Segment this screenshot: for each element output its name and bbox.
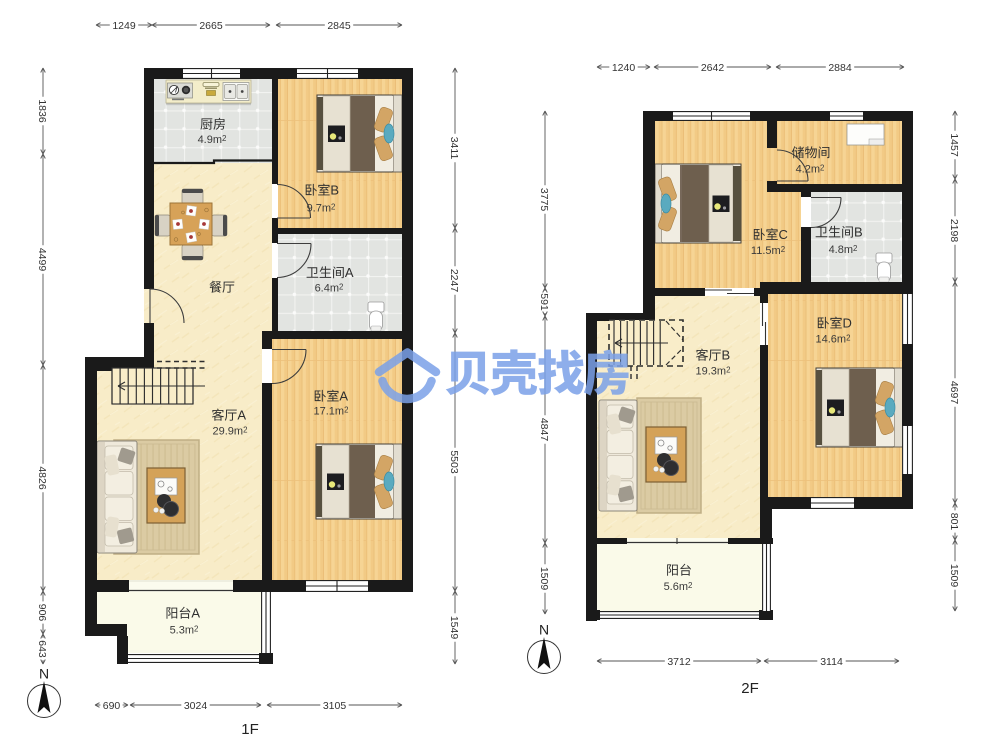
svg-text:29.9m2: 29.9m2 — [213, 426, 248, 438]
svg-text:3105: 3105 — [323, 700, 347, 712]
svg-text:690: 690 — [103, 700, 121, 712]
svg-text:1549: 1549 — [448, 616, 460, 640]
svg-text:B: B — [854, 225, 863, 240]
svg-text:19.3m2: 19.3m2 — [696, 366, 731, 378]
svg-text:C: C — [779, 227, 788, 242]
svg-text:B: B — [722, 348, 731, 363]
svg-text:14.6m2: 14.6m2 — [816, 334, 851, 346]
svg-text:1509: 1509 — [948, 564, 960, 588]
svg-text:A: A — [339, 389, 348, 404]
svg-text:3114: 3114 — [820, 656, 843, 668]
svg-text:2F: 2F — [741, 680, 759, 697]
svg-text:A: A — [191, 606, 200, 621]
svg-text:2884: 2884 — [828, 62, 852, 74]
svg-text:2642: 2642 — [701, 62, 725, 74]
svg-text:4826: 4826 — [36, 466, 48, 490]
svg-text:N: N — [39, 666, 49, 682]
svg-text:3712: 3712 — [667, 656, 691, 668]
svg-text:3775: 3775 — [538, 188, 550, 212]
svg-text:3024: 3024 — [184, 700, 208, 712]
svg-text:906: 906 — [36, 604, 48, 622]
svg-text:D: D — [843, 316, 852, 331]
svg-text:1509: 1509 — [538, 567, 550, 591]
svg-text:5503: 5503 — [448, 450, 460, 474]
svg-text:2247: 2247 — [448, 269, 460, 293]
svg-text:801: 801 — [948, 513, 960, 531]
svg-text:B: B — [330, 183, 339, 198]
svg-text:2665: 2665 — [199, 20, 223, 32]
svg-text:1249: 1249 — [112, 20, 136, 32]
svg-text:643: 643 — [36, 640, 48, 658]
svg-text:11.5m2: 11.5m2 — [751, 245, 785, 257]
svg-text:1457: 1457 — [948, 133, 960, 157]
svg-text:2845: 2845 — [327, 20, 351, 32]
svg-text:3411: 3411 — [448, 137, 460, 160]
svg-text:A: A — [345, 265, 354, 280]
svg-text:591: 591 — [538, 293, 550, 311]
svg-text:4697: 4697 — [948, 381, 960, 405]
svg-text:4499: 4499 — [36, 248, 48, 272]
svg-text:4847: 4847 — [538, 418, 550, 442]
svg-text:1836: 1836 — [36, 99, 48, 123]
svg-text:N: N — [539, 622, 549, 638]
svg-text:A: A — [237, 408, 246, 423]
svg-text:2198: 2198 — [948, 219, 960, 243]
svg-text:1F: 1F — [241, 721, 259, 738]
svg-text:1240: 1240 — [612, 62, 636, 74]
svg-text:17.1m2: 17.1m2 — [314, 406, 349, 418]
